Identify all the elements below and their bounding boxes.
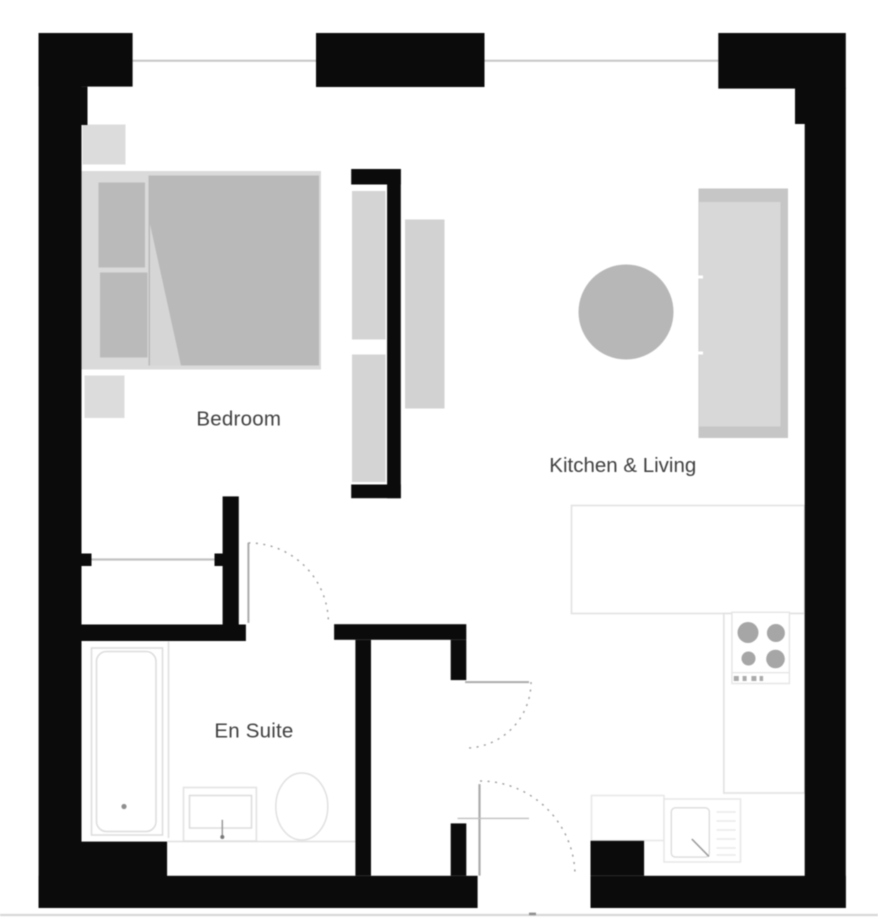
svg-text:Bedroom: Bedroom [196,408,281,431]
svg-text:En Suite: En Suite [214,720,293,743]
svg-text:Kitchen & Living: Kitchen & Living [549,454,696,477]
